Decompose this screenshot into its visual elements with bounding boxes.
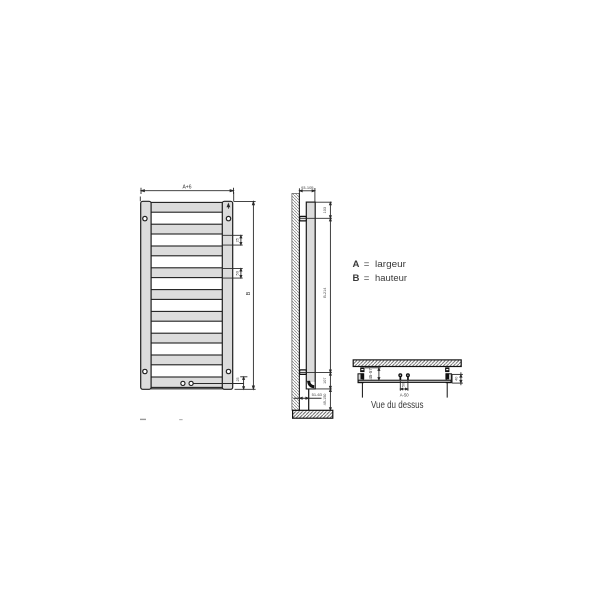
svg-text:49-150: 49-150 xyxy=(323,394,327,406)
svg-text:=: = xyxy=(364,259,370,270)
svg-text:A-50: A-50 xyxy=(400,393,410,398)
svg-text:B: B xyxy=(246,291,252,295)
svg-text:103: 103 xyxy=(323,207,327,213)
svg-text:largeur: largeur xyxy=(375,259,407,270)
svg-text:107: 107 xyxy=(323,378,327,384)
svg-text:93-105: 93-105 xyxy=(301,185,314,190)
svg-text:25: 25 xyxy=(234,237,239,242)
svg-text:hauteur: hauteur xyxy=(375,273,408,284)
svg-text:40: 40 xyxy=(455,377,459,381)
svg-text:25: 25 xyxy=(236,378,240,382)
svg-text:=: = xyxy=(364,273,370,284)
svg-text:Vue du dessus: Vue du dessus xyxy=(371,400,424,411)
svg-text:51-63: 51-63 xyxy=(312,392,323,397)
svg-text:50: 50 xyxy=(234,270,239,275)
svg-text:45-57: 45-57 xyxy=(368,368,373,380)
svg-text:B-214: B-214 xyxy=(323,288,327,298)
svg-text:A: A xyxy=(353,259,360,270)
svg-text:50: 50 xyxy=(402,383,406,387)
svg-text:A+6: A+6 xyxy=(182,185,191,191)
svg-text:B: B xyxy=(353,273,360,284)
